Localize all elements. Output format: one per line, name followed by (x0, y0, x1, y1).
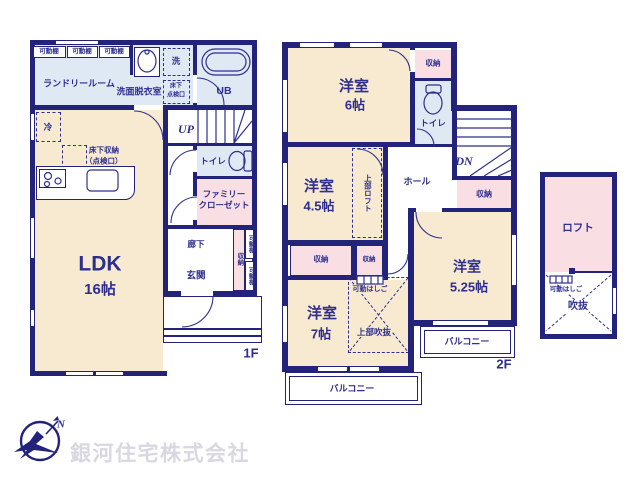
hall-label: ホール (403, 177, 430, 188)
wall (288, 276, 388, 280)
door-gap (416, 208, 442, 212)
storage-label: 収納 (363, 256, 376, 264)
balcony-label-right: バルコニー (445, 337, 490, 348)
floor1-label: 1F (243, 345, 258, 360)
wall (451, 42, 457, 111)
door-gap (193, 75, 197, 103)
hallway-label: 廊下 (187, 239, 204, 249)
wall (166, 143, 252, 146)
upper-void-label: 上部吹抜 (356, 327, 392, 337)
window (56, 40, 98, 45)
room45-size-label: 4.5帖 (303, 198, 334, 213)
window (433, 320, 488, 326)
compass-n-label: N (57, 419, 65, 432)
wall (383, 142, 388, 245)
wall (452, 208, 512, 212)
ldk-size-label: 16帖 (84, 281, 116, 299)
room525-size-label: 5.25帖 (450, 279, 488, 294)
window (511, 235, 517, 285)
wall (285, 142, 415, 147)
underfloor-hatch-label1: 床下 (170, 83, 182, 90)
wall (511, 105, 517, 326)
washer-label: 洗 (172, 56, 181, 66)
shelf-label-v: 可動棚 (246, 267, 253, 285)
floor2-label: 2F (496, 356, 511, 371)
room6-name-label: 洋室 (339, 78, 369, 96)
window (30, 114, 35, 140)
window (282, 306, 288, 342)
stairs-up-label: UP (178, 122, 194, 136)
wall (163, 108, 168, 296)
room-toilet-2f (415, 81, 452, 144)
window (282, 80, 288, 132)
shelf-label: 可動棚 (39, 48, 59, 56)
wall (415, 144, 452, 147)
wall (408, 208, 414, 372)
family-closet-label1: ファミリー (203, 189, 246, 199)
storage-label-v: 収納 (235, 253, 243, 266)
loft-name-label: ロフト (562, 222, 594, 234)
toilet-label-2f: トイレ (420, 118, 446, 128)
wall (352, 245, 356, 276)
window (612, 288, 617, 314)
room7-size-label: 7帖 (311, 326, 331, 341)
family-closet-label2: クローゼット (198, 200, 249, 210)
fridge-label: 冷 (44, 122, 53, 132)
unit-bath-label: UB (216, 85, 231, 97)
entrance-porch (163, 296, 262, 329)
door-gap (193, 150, 197, 172)
stairs-down-label: DN (455, 154, 472, 168)
wall (415, 78, 452, 81)
underfloor-storage-label: 床下収納 (89, 147, 119, 156)
window (30, 218, 35, 258)
wall (451, 105, 517, 111)
wall (282, 366, 414, 372)
shelf-label-v: 可動棚 (246, 235, 253, 253)
porch-step (163, 336, 262, 343)
toilet-label-1f: トイレ (200, 156, 226, 166)
room45-name-label: 洋室 (304, 178, 334, 196)
shelf-label: 可動棚 (72, 48, 92, 56)
wall (197, 176, 252, 179)
floorplan-canvas: 可動棚 可動棚 可動棚 ランドリールーム 洗面脱衣室 洗 床下 点検口 UB 冷… (0, 0, 640, 480)
compass-icon (14, 416, 59, 460)
wall (383, 245, 388, 276)
wall (452, 176, 512, 180)
washroom-label: 洗面脱衣室 (116, 87, 161, 98)
window (96, 371, 123, 376)
door-gap (410, 50, 415, 72)
storage-label: 収納 (314, 256, 329, 265)
window (282, 163, 288, 205)
storage-label: 収納 (476, 189, 492, 198)
window (30, 310, 35, 326)
underfloor-hatch-label2: 点検口 (167, 92, 185, 99)
door-gap (193, 196, 197, 220)
void-label-loft: 吹抜 (567, 301, 589, 313)
ladder-label-2f: 可動はしご (352, 286, 389, 294)
window (300, 42, 334, 48)
room525-name-label: 洋室 (453, 259, 481, 276)
window (318, 366, 347, 372)
window (350, 42, 382, 48)
door-gap (134, 105, 163, 110)
loft-divider (573, 271, 612, 273)
wall (130, 45, 133, 75)
storage-label: 収納 (426, 60, 441, 69)
door-gap (181, 291, 213, 296)
loft-divider-post (569, 268, 575, 274)
wall (288, 240, 386, 245)
stove (39, 169, 66, 188)
room6-size-label: 6帖 (345, 97, 365, 112)
window (350, 366, 379, 372)
window (66, 371, 93, 376)
wall (166, 225, 252, 229)
upper-loft-label: 上部ロフト (363, 174, 372, 212)
stairs-up-treads (198, 110, 252, 143)
shelf-label: 可動棚 (104, 48, 124, 56)
washbasin-box (134, 47, 160, 77)
balcony-label-bottom: バルコニー (330, 384, 375, 395)
ldk-label: LDK (78, 253, 121, 278)
laundry-room-label: ランドリールーム (43, 79, 115, 90)
porch-step (163, 329, 262, 336)
underfloor-storage-note: （点検口） (85, 158, 123, 167)
company-name: 銀河住宅株式会社 (70, 443, 250, 468)
room7-name-label: 洋室 (307, 305, 337, 323)
ladder-label-loft: 可動はしご (549, 286, 584, 294)
entrance-label: 玄関 (186, 270, 205, 281)
